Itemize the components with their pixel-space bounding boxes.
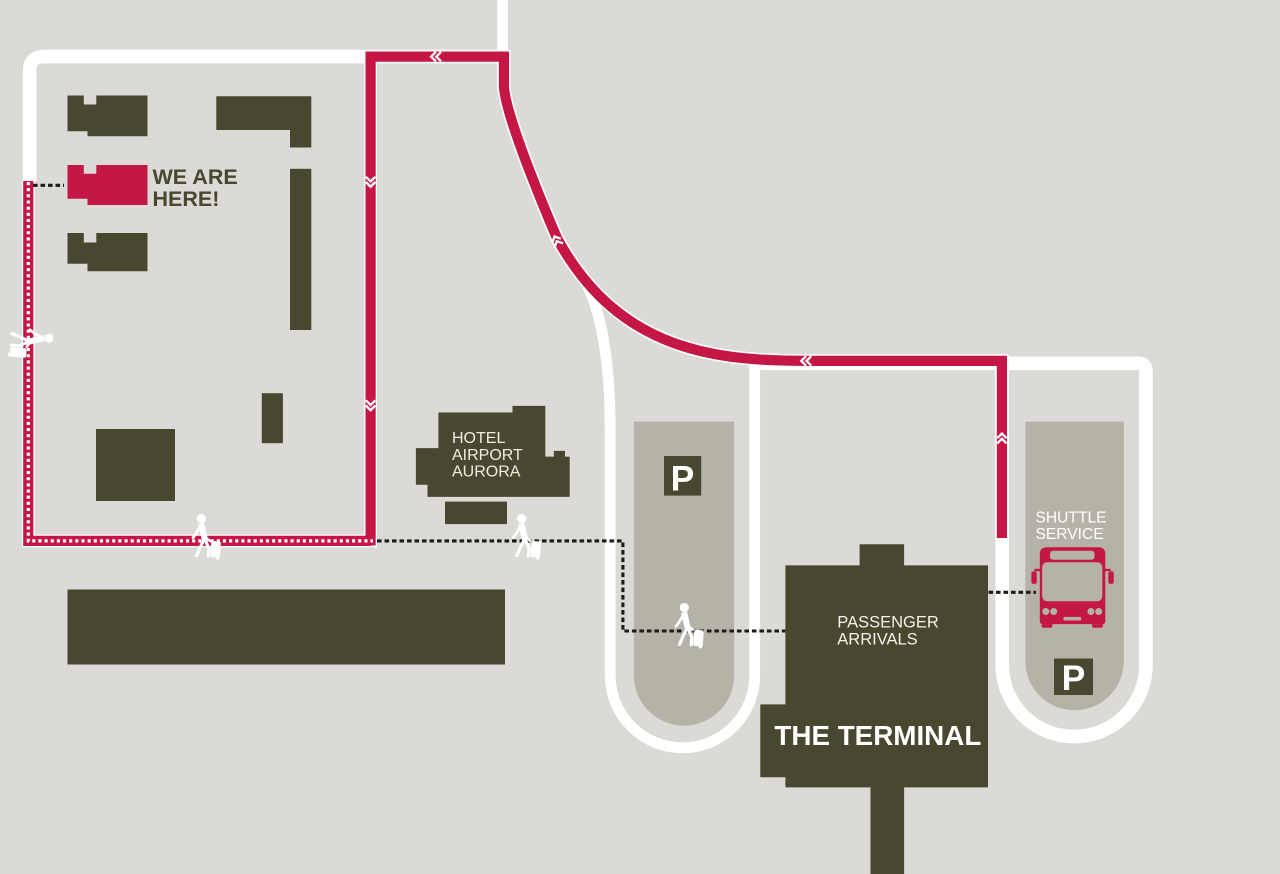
svg-text:WE ARE: WE ARE	[153, 165, 238, 189]
svg-text:AURORA: AURORA	[452, 464, 521, 481]
svg-text:THE TERMINAL: THE TERMINAL	[774, 720, 981, 751]
svg-text:AIRPORT: AIRPORT	[452, 447, 523, 464]
svg-text:SERVICE: SERVICE	[1036, 526, 1104, 543]
svg-text:ARRIVALS: ARRIVALS	[837, 630, 917, 648]
svg-text:HERE!: HERE!	[153, 187, 220, 211]
svg-text:PASSENGER: PASSENGER	[837, 613, 939, 631]
svg-text:P: P	[1062, 658, 1086, 698]
svg-text:HOTEL: HOTEL	[452, 430, 505, 447]
svg-text:P: P	[671, 458, 695, 498]
svg-text:SHUTTLE: SHUTTLE	[1036, 510, 1107, 527]
